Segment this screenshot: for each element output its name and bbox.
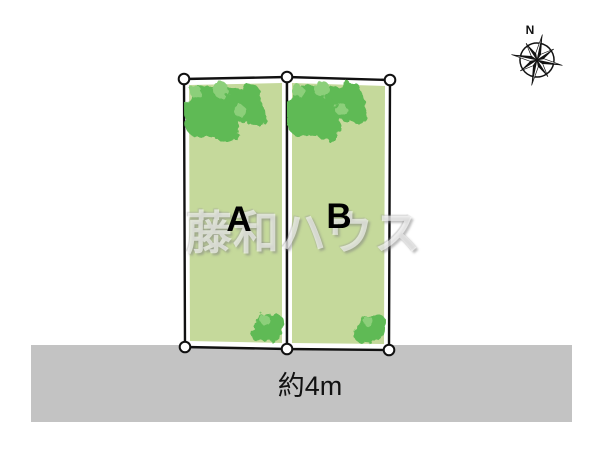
tree-highlight-b-bottom bbox=[363, 316, 373, 326]
corner-marker bbox=[282, 344, 293, 355]
tree-highlight-a-bottom bbox=[260, 315, 270, 325]
plot-b-label: B bbox=[319, 197, 359, 237]
corner-marker bbox=[282, 72, 293, 83]
corner-marker bbox=[180, 342, 191, 353]
site-plan: N 藤和ハウス A B 約4m bbox=[0, 0, 600, 450]
north-label: N bbox=[521, 23, 539, 37]
road-width-label: 約4m bbox=[240, 364, 380, 403]
compass-rose-icon bbox=[506, 29, 568, 91]
corner-marker bbox=[385, 75, 396, 86]
plot-a-label: A bbox=[219, 200, 259, 240]
corner-marker bbox=[179, 74, 190, 85]
corner-marker bbox=[384, 345, 395, 356]
